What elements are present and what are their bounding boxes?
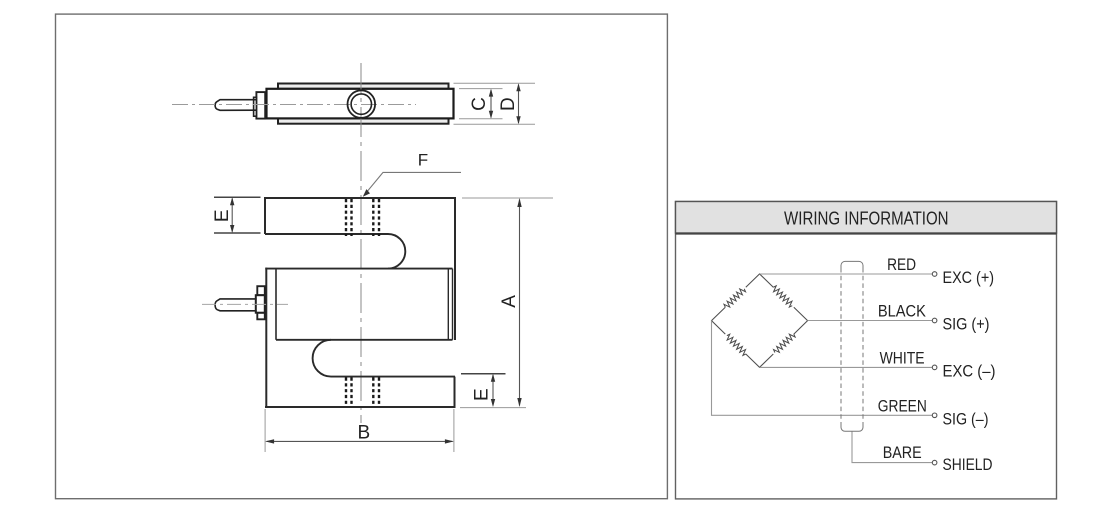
svg-text:WIRING INFORMATION: WIRING INFORMATION <box>784 209 949 229</box>
svg-text:E: E <box>472 388 493 401</box>
svg-text:F: F <box>418 151 428 170</box>
svg-text:EXC (+): EXC (+) <box>943 269 995 287</box>
svg-text:SIG (+): SIG (+) <box>943 316 990 334</box>
svg-text:WHITE: WHITE <box>880 349 925 367</box>
svg-text:SHIELD: SHIELD <box>943 456 993 474</box>
svg-text:EXC (–): EXC (–) <box>943 362 996 380</box>
svg-text:GREEN: GREEN <box>878 397 927 415</box>
svg-text:RED: RED <box>887 256 916 274</box>
svg-text:BARE: BARE <box>883 444 922 462</box>
svg-text:SIG (–): SIG (–) <box>943 410 989 428</box>
svg-text:B: B <box>358 422 371 443</box>
svg-text:BLACK: BLACK <box>878 303 926 321</box>
svg-text:D: D <box>498 97 519 111</box>
svg-text:C: C <box>469 97 490 111</box>
svg-text:E: E <box>212 209 233 222</box>
svg-text:A: A <box>499 295 520 308</box>
